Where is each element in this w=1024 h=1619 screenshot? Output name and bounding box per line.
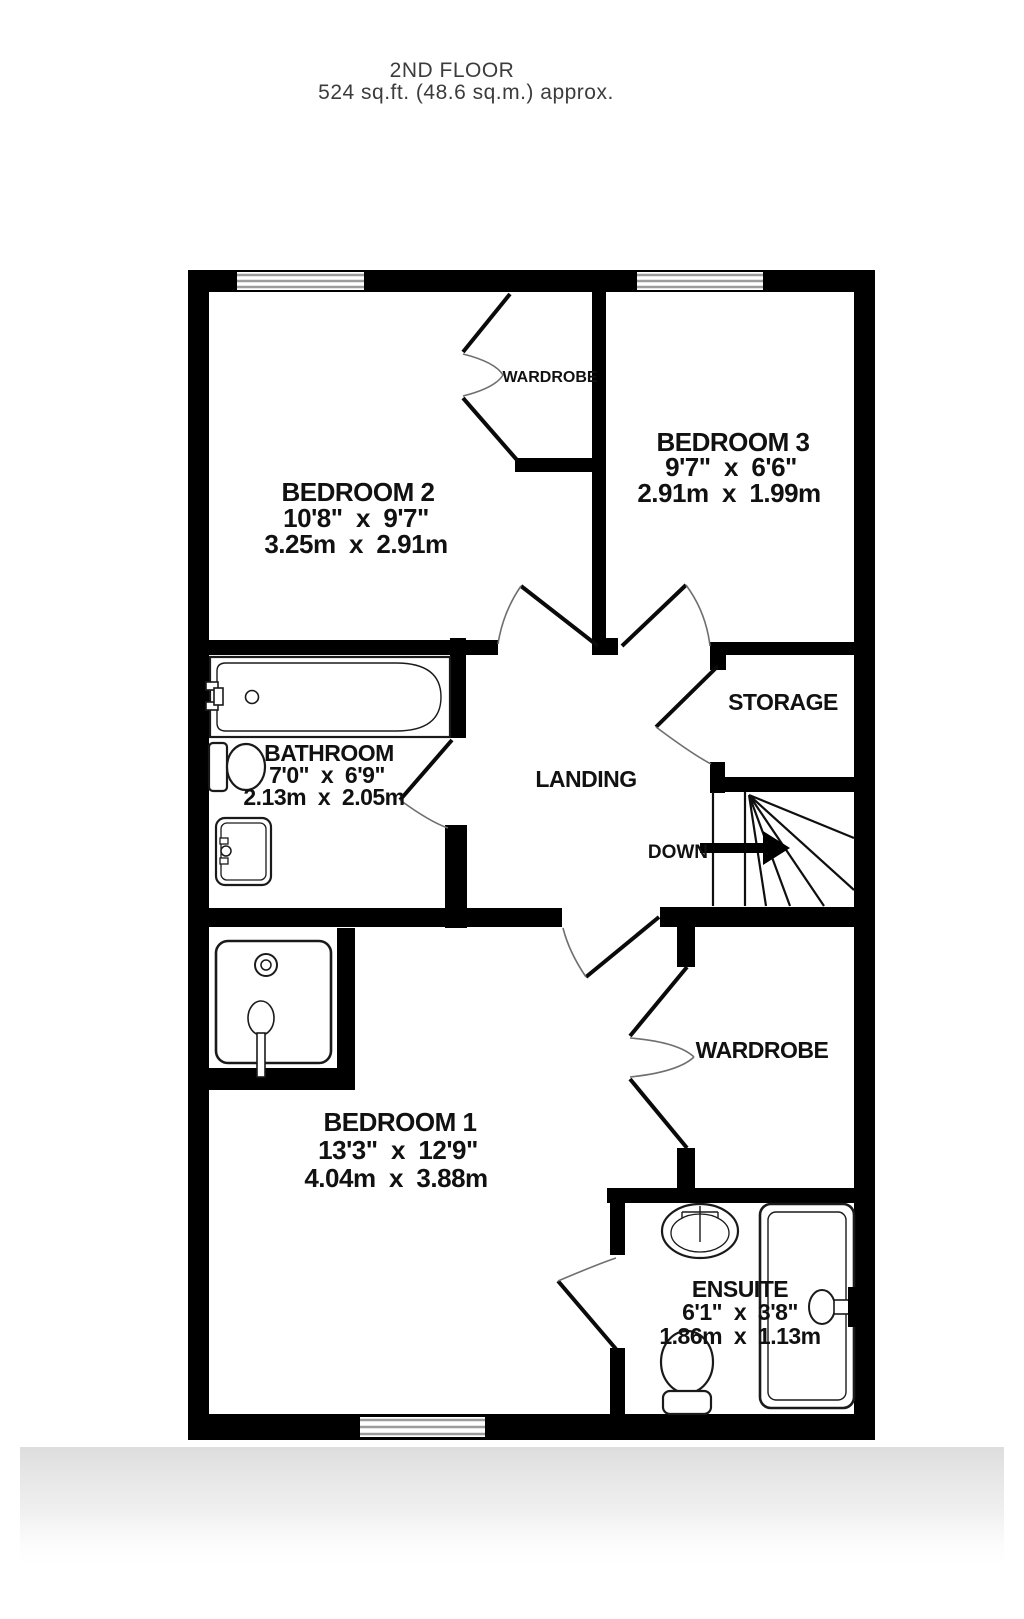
wall-right <box>854 270 875 1440</box>
window-top-left <box>237 272 364 290</box>
wall-ensuite-top <box>607 1188 855 1203</box>
wall-bathroom-right <box>450 638 466 738</box>
shower-nook <box>216 941 331 1077</box>
wall-stairs-top <box>725 777 855 792</box>
shower-head <box>809 1290 835 1324</box>
window-bottom <box>360 1417 485 1437</box>
wall-ensuite-left-lower <box>610 1348 625 1440</box>
ground-shadow <box>20 1447 1004 1567</box>
toilet-cistern <box>663 1391 711 1414</box>
room-size-metric: 2.13m x 2.05m <box>243 784 404 810</box>
label-wardrobe-bedroom1: WARDROBE <box>696 1037 829 1063</box>
basin-tap-handle <box>220 858 228 864</box>
shower-wall-mount <box>848 1287 860 1327</box>
wall-post-storage-bottom <box>710 762 725 793</box>
shower-riser <box>257 1033 265 1077</box>
stairs-down-label: DOWN <box>648 842 708 863</box>
wall-shower-nook-right <box>337 928 355 1090</box>
floor-area: 524 sq.ft. (48.6 sq.m.) approx. <box>318 81 614 104</box>
floorplan-drawing: 2ND FLOOR 524 sq.ft. (48.6 sq.m.) approx… <box>0 0 1024 1619</box>
room-size-metric: 3.25m x 2.91m <box>264 529 447 559</box>
wall-landing-bottom-left <box>188 908 562 927</box>
wall-post-wardrobe1-top <box>677 923 695 967</box>
shower-head <box>248 1001 274 1035</box>
bathtub-spout <box>214 688 223 705</box>
wall-shower-nook-bottom <box>188 1068 355 1090</box>
label-bedroom2: BEDROOM 2 10'8" x 9'7" 3.25m x 2.91m <box>264 477 447 559</box>
wall-bed3-bottom <box>710 642 855 655</box>
bathroom-basin <box>216 818 271 885</box>
wall-wardrobe2-bottom <box>515 458 606 472</box>
room-name: BEDROOM 1 <box>324 1107 477 1137</box>
room-size-imperial: 6'1" x 3'8" <box>682 1299 798 1325</box>
label-storage: STORAGE <box>728 689 838 715</box>
room-size-metric: 4.04m x 3.88m <box>304 1163 487 1193</box>
label-wardrobe-bedroom2: WARDROBE <box>502 369 597 386</box>
room-size-imperial: 13'3" x 12'9" <box>318 1135 478 1165</box>
floor-title: 2ND FLOOR <box>390 59 515 82</box>
bathtub-drain <box>246 691 259 704</box>
wall-bottom <box>188 1414 875 1440</box>
window-top-right <box>637 272 763 290</box>
room-size-metric: 1.86m x 1.13m <box>659 1323 820 1349</box>
basin-tap-handle <box>220 838 228 844</box>
floorplan-page: 2ND FLOOR 524 sq.ft. (48.6 sq.m.) approx… <box>0 0 1024 1619</box>
basin-tap <box>221 846 231 856</box>
room-size-metric: 2.91m x 1.99m <box>637 478 820 508</box>
wall-post-storage-top <box>710 642 726 670</box>
shower-drain-inner <box>261 960 271 970</box>
wall-ensuite-left-upper <box>610 1188 625 1255</box>
bathtub <box>206 657 450 737</box>
ensuite-basin <box>662 1204 738 1258</box>
label-landing: LANDING <box>535 766 636 792</box>
wall-left <box>188 270 209 1440</box>
toilet-cistern <box>209 743 227 791</box>
label-bedroom1: BEDROOM 1 13'3" x 12'9" 4.04m x 3.88m <box>304 1107 487 1193</box>
label-bedroom3: BEDROOM 3 9'7" x 6'6" 2.91m x 1.99m <box>637 427 820 508</box>
